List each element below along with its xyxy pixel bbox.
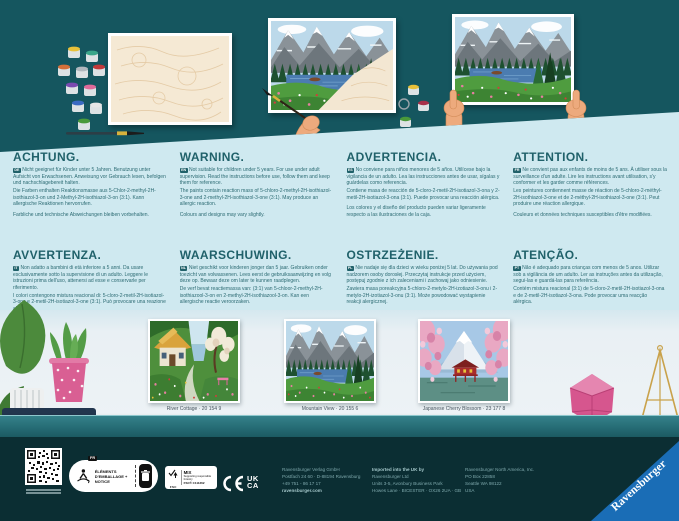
shelf-edge bbox=[0, 415, 679, 438]
warning-note: Farbliche und technische Abweichungen bl… bbox=[13, 212, 167, 219]
lang-badge-en: EN bbox=[180, 168, 188, 173]
warning-title-pl: OSTRZEŻENIE. bbox=[347, 248, 501, 262]
warnings-grid: ACHTUNG. DENicht geeignet für Kinder unt… bbox=[13, 150, 667, 331]
warning-title-pt: ATENÇÃO. bbox=[513, 248, 667, 262]
address-line: Postfach 24 60 · D-88194 Ravensburg bbox=[282, 474, 368, 481]
address-line: USA bbox=[465, 488, 555, 495]
warning-note: Couleurs et données techniques susceptib… bbox=[513, 212, 667, 219]
lang-badge-pl: PL bbox=[347, 266, 354, 271]
sorting-bin-icon bbox=[139, 464, 152, 488]
address-line: Ravensburger Ltd bbox=[372, 474, 464, 481]
warning-text: The paints contain reaction mass of 5-ch… bbox=[180, 188, 334, 208]
address-line: Howes Lane · BICESTER · OX26 2UA · GB bbox=[372, 488, 464, 495]
paint-pots-small-icon bbox=[396, 84, 436, 130]
warning-text: Niet geschikt voor kinderen jonger dan 5… bbox=[180, 265, 331, 284]
lang-badge-pt: PT bbox=[513, 266, 520, 271]
ukca-mark: UK CA bbox=[247, 475, 259, 489]
warning-text: Les peintures contiennent masse de réact… bbox=[513, 188, 667, 208]
lang-badge-de: DE bbox=[13, 168, 21, 173]
address-line: Ravensburger North America, Inc. bbox=[465, 467, 555, 474]
product-caption-river-cottage: River Cottage · 20 154 9 bbox=[118, 406, 270, 412]
fsc-subtitle: Supporting responsible forestry bbox=[184, 475, 214, 481]
address-germany: Ravensburger Verlag GmbH Postfach 24 60 … bbox=[282, 467, 368, 495]
warning-text: Nie nadaje się dla dzieci w wieku poniże… bbox=[347, 265, 498, 284]
warning-text: Contiene masa de reacción de 5-cloro-2-m… bbox=[347, 188, 501, 201]
divider bbox=[135, 465, 136, 487]
triman-label-text: ÉLÉMENTS D'EMBALLAGE + NOTICE bbox=[95, 469, 132, 484]
warning-block-en: WARNING. ENNot suitable for children und… bbox=[180, 150, 334, 235]
address-line: Ravensburger Verlag GmbH bbox=[282, 467, 368, 474]
warning-text: Não é adequado para crianças com menos d… bbox=[513, 265, 663, 284]
warning-title-nl: WAARSCHUWING. bbox=[180, 248, 334, 262]
ce-mark-icon bbox=[221, 475, 245, 492]
address-website: ravensburger.com bbox=[282, 488, 368, 495]
triman-fr-tag: FR bbox=[88, 456, 97, 461]
address-line: PO Box 22858 bbox=[465, 474, 555, 481]
warning-text: Contém mistura reacional (3:1) de 5-clor… bbox=[513, 286, 667, 306]
warning-title-en: WARNING. bbox=[180, 150, 334, 164]
warning-text: Non adatto a bambini di età inferiore a … bbox=[13, 265, 148, 291]
warning-title-de: ACHTUNG. bbox=[13, 150, 167, 164]
qr-caption-line bbox=[26, 489, 61, 491]
warning-note: Los colores y el diseño del producto pue… bbox=[347, 205, 501, 218]
warning-block-fr: ATTENTION. FRNe convient pas aux enfants… bbox=[513, 150, 667, 235]
triman-icon bbox=[75, 467, 92, 485]
ukca-bottom: CA bbox=[247, 482, 259, 489]
product-image-river-cottage bbox=[148, 319, 240, 403]
triman-recycling-label: ÉLÉMENTS D'EMBALLAGE + NOTICE bbox=[69, 460, 158, 492]
product-caption-mountain-view: Mountain View · 20 155 6 bbox=[254, 406, 406, 412]
warning-text: Die Farben enthalten Reaktionsmasse aus … bbox=[13, 188, 167, 208]
ravensburger-logo: Ravensburger bbox=[591, 441, 679, 521]
warning-note: Colours and designs may vary slightly. bbox=[180, 212, 334, 219]
lang-badge-es: ES bbox=[347, 168, 355, 173]
address-line: Imported into the UK by bbox=[372, 467, 464, 474]
warning-block-de: ACHTUNG. DENicht geeignet für Kinder unt… bbox=[13, 150, 167, 235]
warning-text: Nicht geeignet für Kinder unter 5 Jahren… bbox=[13, 167, 166, 186]
warning-text: Not suitable for children under 5 years.… bbox=[180, 167, 330, 186]
fsc-code: FSC® C111262 bbox=[184, 481, 214, 485]
warning-title-es: ADVERTENCIA. bbox=[347, 150, 501, 164]
address-line: +49 751 - 86 17 17 bbox=[282, 481, 368, 488]
product-image-japanese-cherry-blossom bbox=[418, 319, 510, 403]
warning-title-it: AVVERTENZA. bbox=[13, 248, 167, 262]
paint-pots-icon bbox=[56, 42, 110, 134]
lang-badge-nl: NL bbox=[180, 266, 188, 271]
address-uk: Imported into the UK by Ravensburger Ltd… bbox=[372, 467, 464, 495]
lang-badge-fr: FR bbox=[513, 168, 521, 173]
warning-block-es: ADVERTENCIA. ESNo conviene para niños me… bbox=[347, 150, 501, 235]
warning-text: De verf bevat reactiemassa van: (3:1) va… bbox=[180, 286, 334, 306]
paint-brush-icon bbox=[66, 128, 146, 138]
box-back-panel: ACHTUNG. DENicht geeignet für Kinder unt… bbox=[0, 0, 679, 521]
address-line: Seattle WA 98122 bbox=[465, 481, 555, 488]
warning-text: Zawiera masa poreakcyjna 5-chloro-2-mety… bbox=[347, 286, 501, 306]
warning-text: Ne convient pas aux enfants de moins de … bbox=[513, 167, 667, 186]
warning-title-fr: ATTENTION. bbox=[513, 150, 667, 164]
qr-code bbox=[25, 448, 62, 485]
fsc-label: FSC MIX Supporting responsible forestry … bbox=[165, 466, 217, 489]
lang-badge-it: IT bbox=[13, 266, 19, 271]
product-caption-japanese-cherry-blossom: Japanese Cherry Blossom · 23 177 8 bbox=[388, 406, 540, 412]
fsc-title: FSC bbox=[168, 485, 179, 489]
address-usa: Ravensburger North America, Inc. PO Box … bbox=[465, 467, 555, 495]
address-line: Units 3-5, Avonbury Business Park bbox=[372, 481, 464, 488]
fsc-tree-icon bbox=[168, 469, 178, 480]
blank-numbered-canvas bbox=[108, 33, 232, 125]
warning-text: No conviene para niños menores de 5 años… bbox=[347, 167, 500, 186]
product-image-mountain-view bbox=[284, 319, 376, 403]
qr-caption-line bbox=[26, 492, 61, 494]
